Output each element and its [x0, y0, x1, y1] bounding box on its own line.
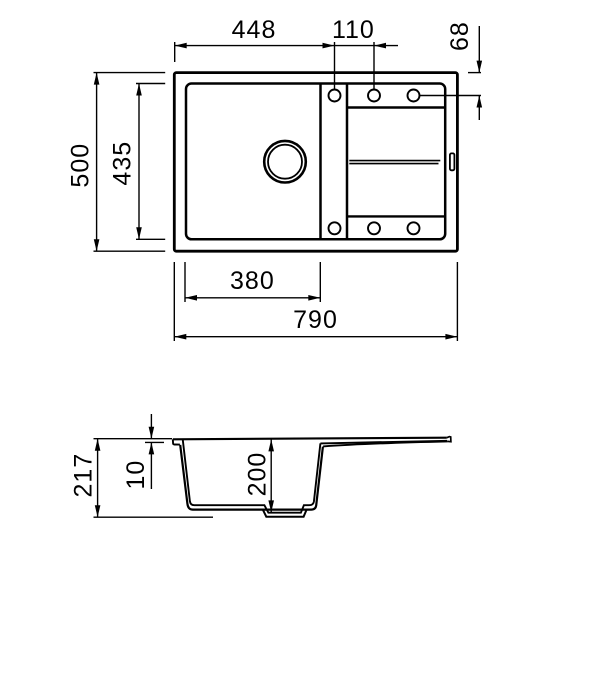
- svg-text:500: 500: [66, 143, 94, 188]
- svg-text:10: 10: [122, 460, 150, 490]
- svg-text:200: 200: [244, 452, 272, 497]
- svg-text:217: 217: [69, 453, 97, 498]
- svg-text:448: 448: [232, 16, 277, 44]
- svg-text:380: 380: [230, 267, 275, 295]
- svg-text:110: 110: [332, 16, 375, 44]
- svg-text:790: 790: [293, 306, 338, 334]
- svg-text:435: 435: [108, 141, 136, 186]
- svg-text:68: 68: [446, 21, 474, 51]
